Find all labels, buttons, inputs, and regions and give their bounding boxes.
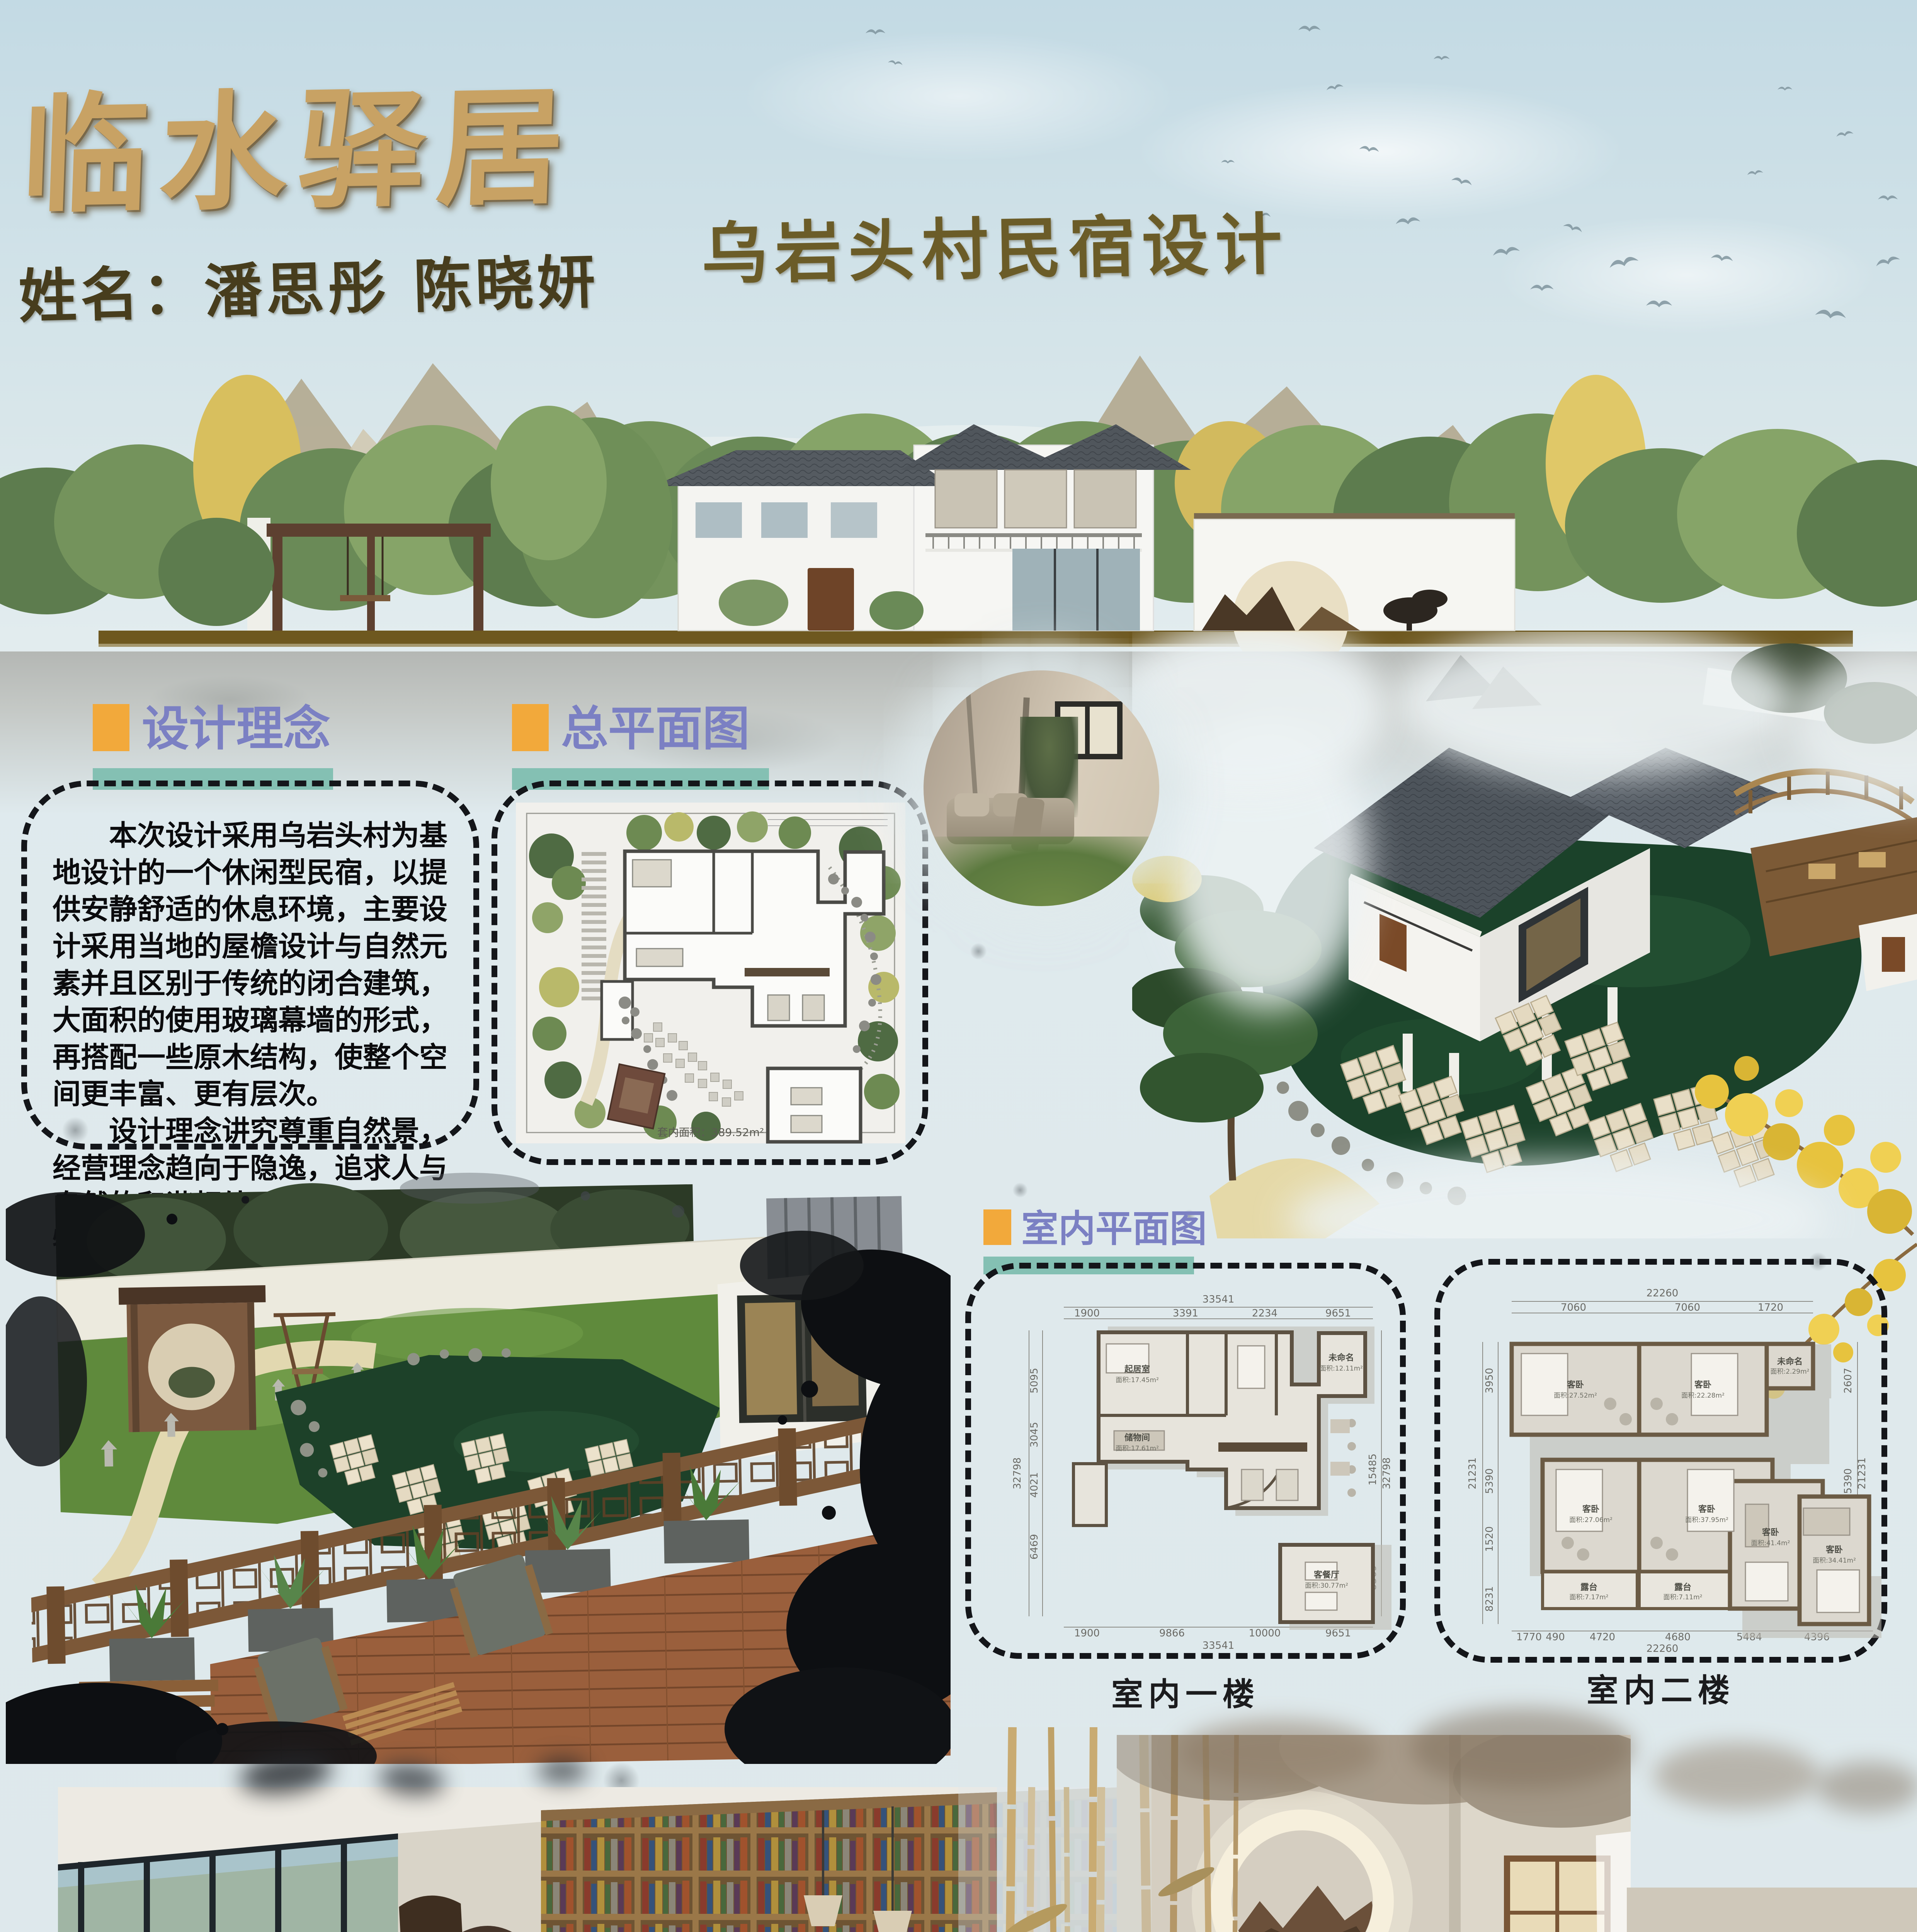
room-name-label: 客卧 <box>1826 1545 1843 1555</box>
dim-label: 5390 <box>1842 1468 1854 1494</box>
dim-label: 2607 <box>1842 1368 1854 1393</box>
inset-grass <box>924 837 1159 906</box>
dim-label: 3045 <box>1029 1422 1040 1447</box>
section-bullet-icon <box>983 1209 1011 1245</box>
dim-label: 1900 <box>1074 1308 1100 1319</box>
ink-speck <box>970 943 987 960</box>
inset-window-mullion <box>1085 701 1090 759</box>
dim-label: 9866 <box>1159 1628 1185 1639</box>
room-name-label: 客卧 <box>1762 1527 1779 1537</box>
room-area-label: 面积:17.45m² <box>1116 1376 1159 1384</box>
swing-corner-inset-photo <box>924 670 1159 906</box>
dim-label: 490 <box>1546 1631 1565 1643</box>
page-title: 临水驿居 <box>19 76 642 227</box>
dim-label: 9651 <box>1325 1308 1351 1319</box>
room-area-label: 面积:41.4m² <box>1751 1539 1790 1547</box>
room-area-label: 面积:12.11m² <box>1320 1365 1363 1372</box>
dim-label: 1520 <box>1484 1526 1495 1552</box>
section-heading-label: 总平面图 <box>561 704 750 753</box>
room-area-label: 面积:27.52m² <box>1554 1392 1597 1400</box>
ink-wash <box>1410 1708 1635 1789</box>
floor-plan-first-panel: 33541 1900 3391 2234 9651 32798 5095 304… <box>965 1263 1406 1659</box>
dim-label: 3391 <box>1173 1308 1198 1319</box>
dim-label: 33541 <box>1203 1640 1235 1651</box>
dim-label: 5095 <box>1029 1368 1040 1393</box>
room-area-label: 面积:34.41m² <box>1813 1557 1856 1565</box>
authors-line: 姓名：潘思彤 陈晓妍 <box>17 235 600 334</box>
dim-label: 7060 <box>1561 1302 1586 1313</box>
room-area-label: 面积:22.28m² <box>1681 1392 1725 1400</box>
room-name-label: 客卧 <box>1567 1380 1584 1390</box>
section-header-interior-plans: 室内平面图 <box>983 1209 1207 1248</box>
dim-label: 22260 <box>1647 1287 1679 1299</box>
room-area-label: 面积:30.77m² <box>1305 1582 1348 1590</box>
ceiling-shade <box>1627 1888 1917 1932</box>
dim-label: 4680 <box>1665 1631 1691 1643</box>
dim-label: 3950 <box>1484 1368 1495 1393</box>
dim-label: 21231 <box>1856 1458 1868 1490</box>
floor-plan-first-drawing: 33541 1900 3391 2234 9651 32798 5095 304… <box>971 1269 1400 1653</box>
room-name-label: 客卧 <box>1582 1504 1599 1514</box>
room-name-label: 储物间 <box>1124 1433 1150 1443</box>
design-concept-paragraph-1: 本次设计采用乌岩头村为基地设计的一个休闲型民宿，以提供安静舒适的休息环境，主要设… <box>53 817 451 1113</box>
curtain <box>1596 1832 1631 1932</box>
room-name-label: 露台 <box>1674 1582 1691 1592</box>
dim-label: 32798 <box>1012 1458 1023 1490</box>
aerial-pond-rendering <box>1132 632 1917 1238</box>
room-area-label: 面积:7.17m² <box>1570 1594 1609 1601</box>
room-name-label: 未命名 <box>1328 1353 1354 1363</box>
room-name-label: 客卧 <box>1694 1380 1711 1390</box>
room-area-label: 面积:2.29m² <box>1771 1368 1810 1376</box>
dim-label: 7060 <box>1675 1302 1700 1313</box>
section-bullet-icon <box>93 704 129 751</box>
bench-cushion <box>954 793 989 816</box>
dim-label: 6469 <box>1029 1534 1040 1560</box>
page-subtitle: 乌岩头村民宿设计 <box>701 190 1289 297</box>
dim-label: 33541 <box>1203 1294 1235 1305</box>
ink-splash <box>537 1758 587 1783</box>
design-concept-panel: 本次设计采用乌岩头村为基地设计的一个休闲型民宿，以提供安静舒适的休息环境，主要设… <box>21 781 479 1150</box>
dim-label: 5390 <box>1484 1468 1495 1494</box>
main-building <box>653 424 1191 631</box>
dim-label: 1770 <box>1516 1631 1542 1643</box>
section-heading-label: 设计理念 <box>142 704 330 753</box>
garden-courtyard-rendering <box>6 1173 951 1764</box>
ink-wash <box>1816 1762 1917 1812</box>
section-bullet-icon <box>512 704 549 751</box>
ink-wash <box>1179 1719 1379 1785</box>
dim-label: 10000 <box>1249 1628 1281 1639</box>
dim-label: 32798 <box>1381 1458 1393 1490</box>
dim-label: 4021 <box>1029 1472 1040 1498</box>
room-name-label: 起居室 <box>1124 1364 1150 1374</box>
poster-root: 临水驿居 乌岩头村民宿设计 姓名：潘思彤 陈晓妍 设计理念 总平面图 本次设计采… <box>0 0 1917 1932</box>
room-name-label: 露台 <box>1580 1582 1597 1592</box>
room-area-label: 面积:37.95m² <box>1685 1516 1728 1524</box>
section-heading-label: 室内平面图 <box>1021 1209 1207 1248</box>
floor-plan-second-label: 室内二楼 <box>1434 1665 1887 1711</box>
site-plan-panel: 套内面积：389.52m² <box>492 781 928 1165</box>
floor-plan-second-panel: 22260 7060 7060 1720 21231 3950 5390 152… <box>1434 1259 1887 1663</box>
site-plan-area-note: 套内面积：389.52m² <box>657 1126 764 1139</box>
dim-label: 2234 <box>1252 1308 1277 1319</box>
room-name-label: 未命名 <box>1777 1357 1803 1367</box>
dim-label: 8231 <box>1484 1586 1495 1612</box>
dim-label: 15485 <box>1367 1454 1379 1486</box>
moon-gate-pavilion <box>119 1285 268 1432</box>
dim-label: 1900 <box>1074 1628 1100 1639</box>
dim-label: 1720 <box>1758 1302 1783 1313</box>
section-header-site-plan: 总平面图 <box>512 704 750 753</box>
dim-label: 21231 <box>1467 1458 1478 1490</box>
dim-label: 22260 <box>1647 1643 1679 1655</box>
floor-plan-first-label: 室内一楼 <box>965 1668 1406 1714</box>
room-name-label: 客餐厅 <box>1314 1570 1339 1580</box>
room-name-label: 客卧 <box>1698 1504 1715 1514</box>
ink-speck <box>1012 1182 1028 1198</box>
dining-room-photo <box>1627 1888 1917 1932</box>
dim-label: 4720 <box>1590 1631 1615 1643</box>
ink-wash <box>1654 1743 1820 1808</box>
site-plan-drawing: 套内面积：389.52m² <box>497 786 922 1159</box>
room-area-label: 面积:7.11m² <box>1664 1594 1703 1601</box>
floor-plan-second-drawing: 22260 7060 7060 1720 21231 3950 5390 152… <box>1440 1265 1881 1657</box>
section-header-design-concept: 设计理念 <box>93 704 330 753</box>
room-area-label: 面积:17.61m² <box>1116 1445 1159 1452</box>
room-area-label: 面积:27.06m² <box>1569 1516 1613 1524</box>
bamboo-overlay <box>958 1727 1152 1932</box>
